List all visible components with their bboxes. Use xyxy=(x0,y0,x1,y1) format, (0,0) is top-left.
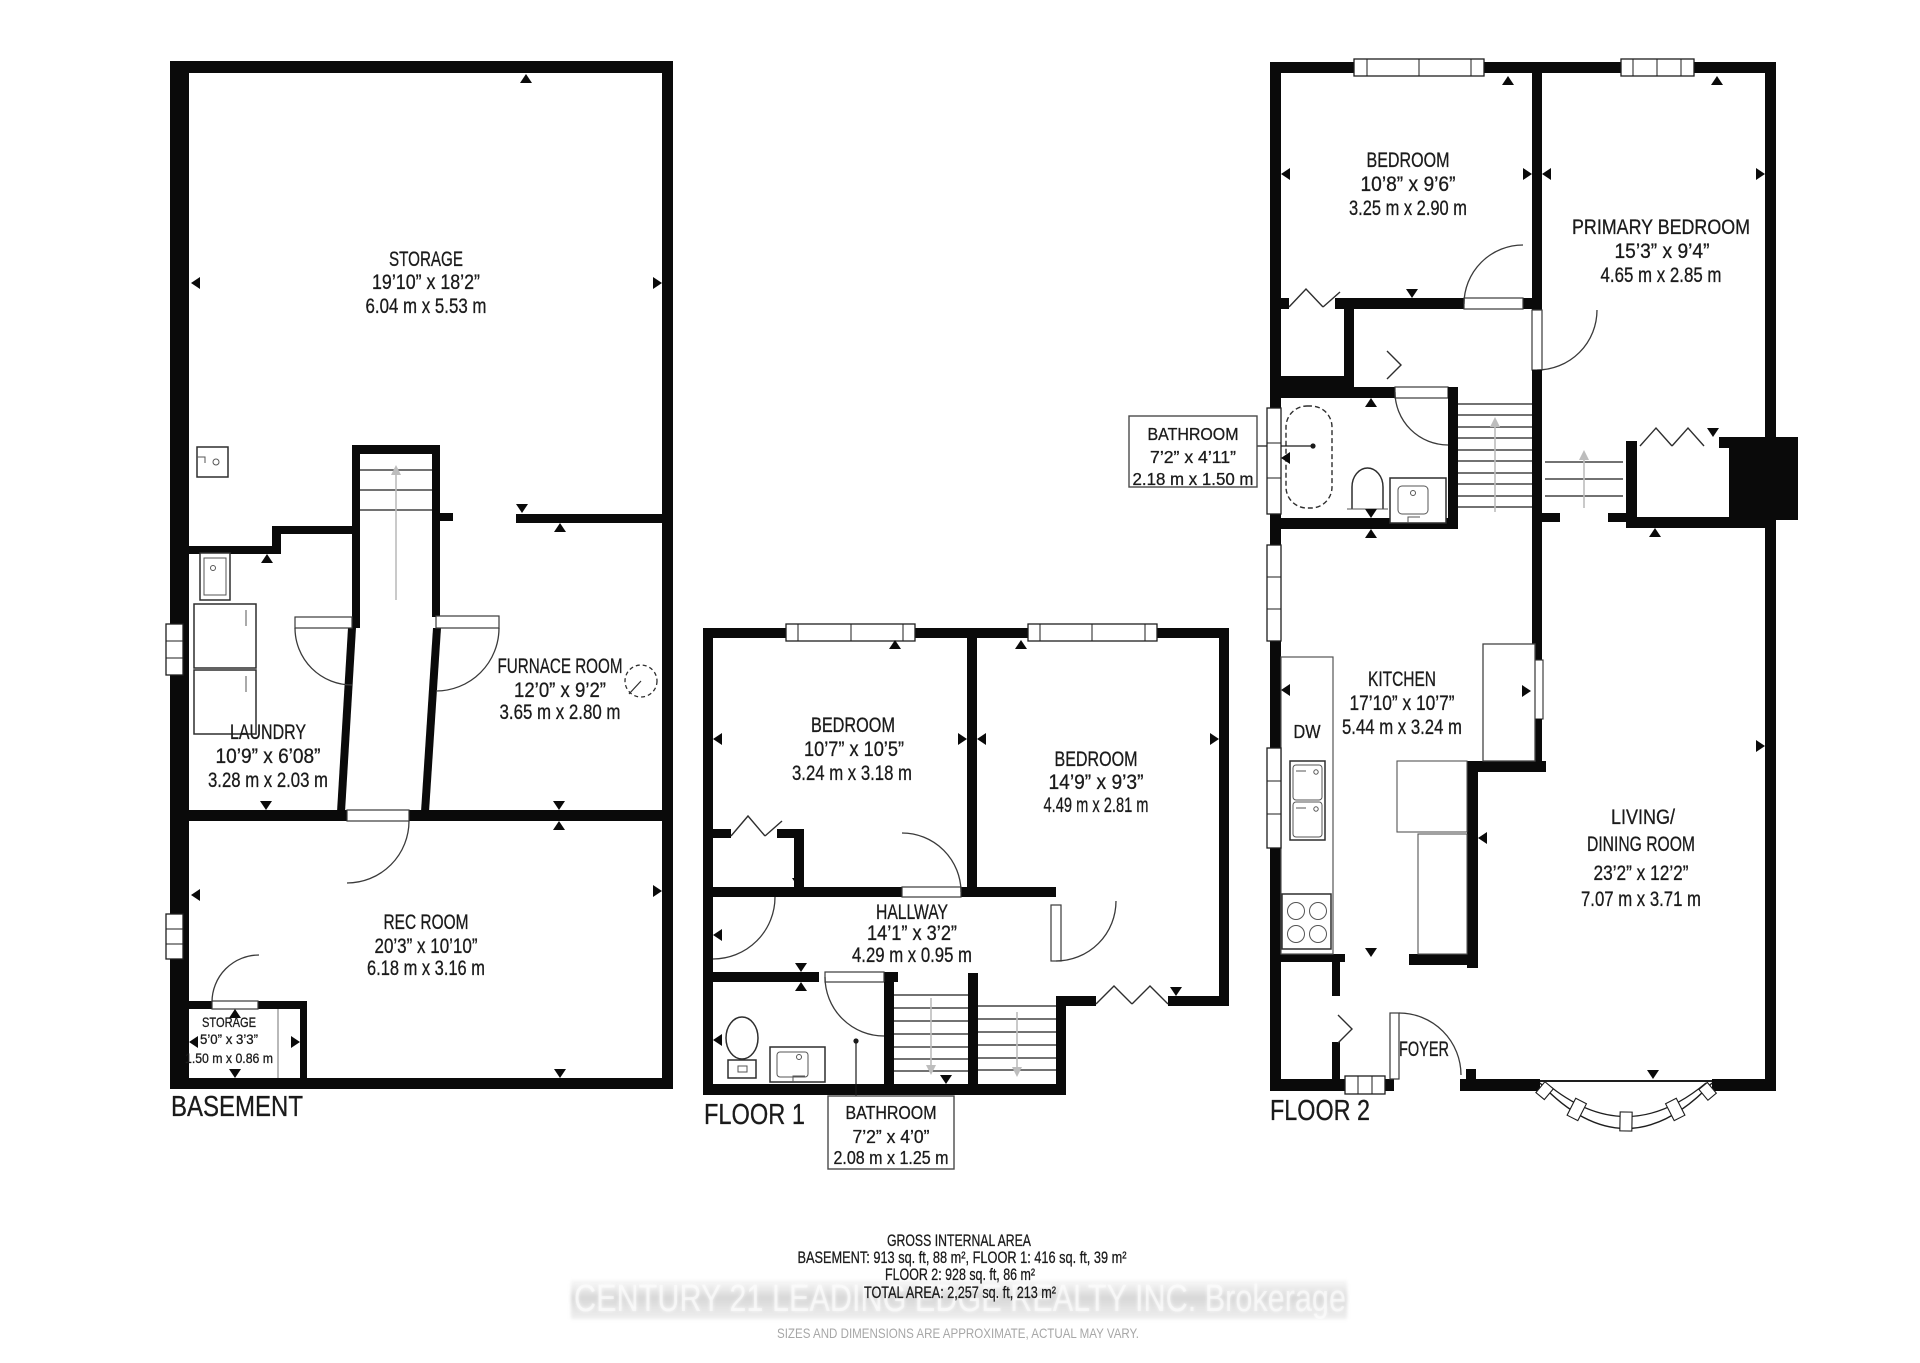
svg-text:14’9” x 9’3”: 14’9” x 9’3” xyxy=(1049,771,1144,794)
svg-text:REC ROOM: REC ROOM xyxy=(384,911,469,934)
svg-text:10’8” x 9’6”: 10’8” x 9’6” xyxy=(1361,173,1456,196)
svg-text:DW: DW xyxy=(1294,722,1321,742)
svg-text:7’2” x 4’0”: 7’2” x 4’0” xyxy=(853,1127,930,1147)
svg-text:12’0” x 9’2”: 12’0” x 9’2” xyxy=(514,679,606,702)
svg-text:3.28 m x 2.03 m: 3.28 m x 2.03 m xyxy=(208,769,328,792)
svg-text:BASEMENT: BASEMENT xyxy=(171,1091,303,1123)
svg-text:19’10” x 18’2”: 19’10” x 18’2” xyxy=(372,271,480,294)
svg-text:10’9” x 6’08”: 10’9” x 6’08” xyxy=(216,745,321,768)
svg-text:HALLWAY: HALLWAY xyxy=(876,901,948,924)
svg-text:FURNACE ROOM: FURNACE ROOM xyxy=(498,655,623,678)
svg-text:3.65 m x 2.80 m: 3.65 m x 2.80 m xyxy=(500,701,621,724)
svg-text:FOYER: FOYER xyxy=(1399,1038,1449,1061)
svg-text:PRIMARY BEDROOM: PRIMARY BEDROOM xyxy=(1572,216,1750,239)
svg-text:BATHROOM: BATHROOM xyxy=(1148,424,1239,444)
svg-text:7.07 m x 3.71 m: 7.07 m x 3.71 m xyxy=(1581,888,1701,911)
svg-text:6.04 m x 5.53 m: 6.04 m x 5.53 m xyxy=(366,295,487,318)
svg-text:3.24 m x 3.18 m: 3.24 m x 3.18 m xyxy=(792,762,912,785)
svg-text:7’2” x 4’11”: 7’2” x 4’11” xyxy=(1150,447,1236,467)
svg-text:6.18 m x 3.16 m: 6.18 m x 3.16 m xyxy=(367,957,485,980)
svg-text:FLOOR 2: 928 sq. ft, 86 m²: FLOOR 2: 928 sq. ft, 86 m² xyxy=(885,1265,1035,1284)
svg-text:2.18 m x 1.50 m: 2.18 m x 1.50 m xyxy=(1133,469,1254,489)
svg-text:5.44 m x 3.24 m: 5.44 m x 3.24 m xyxy=(1342,716,1462,739)
svg-text:20’3” x 10’10”: 20’3” x 10’10” xyxy=(375,935,478,958)
svg-text:DINING ROOM: DINING ROOM xyxy=(1587,833,1695,856)
svg-text:2.08 m x 1.25 m: 2.08 m x 1.25 m xyxy=(834,1148,949,1168)
svg-text:LAUNDRY: LAUNDRY xyxy=(230,721,306,744)
svg-text:14’1” x 3’2”: 14’1” x 3’2” xyxy=(867,922,957,945)
svg-text:4.49 m x 2.81 m: 4.49 m x 2.81 m xyxy=(1044,794,1149,817)
svg-text:LIVING/: LIVING/ xyxy=(1611,806,1675,829)
svg-text:23’2” x 12’2”: 23’2” x 12’2” xyxy=(1594,862,1689,885)
svg-text:4.29 m x 0.95 m: 4.29 m x 0.95 m xyxy=(852,944,972,967)
svg-text:SIZES AND DIMENSIONS ARE APPRO: SIZES AND DIMENSIONS ARE APPROXIMATE, AC… xyxy=(777,1325,1139,1341)
svg-text:1.50 m x 0.86 m: 1.50 m x 0.86 m xyxy=(185,1050,273,1066)
svg-text:KITCHEN: KITCHEN xyxy=(1368,668,1436,691)
svg-text:FLOOR 2: FLOOR 2 xyxy=(1270,1095,1370,1127)
svg-text:17’10” x 10’7”: 17’10” x 10’7” xyxy=(1350,692,1455,715)
svg-text:FLOOR 1: FLOOR 1 xyxy=(704,1099,805,1131)
svg-text:15’3” x 9’4”: 15’3” x 9’4” xyxy=(1615,240,1710,263)
svg-text:BATHROOM: BATHROOM xyxy=(846,1103,937,1123)
svg-text:3.25 m x 2.90 m: 3.25 m x 2.90 m xyxy=(1349,197,1467,220)
svg-text:TOTAL AREA: 2,257 sq. ft, 213: TOTAL AREA: 2,257 sq. ft, 213 m² xyxy=(864,1283,1056,1302)
svg-text:BEDROOM: BEDROOM xyxy=(1367,149,1450,172)
svg-text:STORAGE: STORAGE xyxy=(389,248,463,271)
svg-text:BEDROOM: BEDROOM xyxy=(1055,748,1138,771)
svg-text:10’7” x 10’5”: 10’7” x 10’5” xyxy=(804,738,904,761)
svg-text:BEDROOM: BEDROOM xyxy=(811,714,895,737)
svg-text:STORAGE: STORAGE xyxy=(202,1014,256,1030)
svg-text:4.65 m x 2.85 m: 4.65 m x 2.85 m xyxy=(1601,264,1722,287)
svg-text:5’0” x 3’3”: 5’0” x 3’3” xyxy=(200,1031,258,1047)
